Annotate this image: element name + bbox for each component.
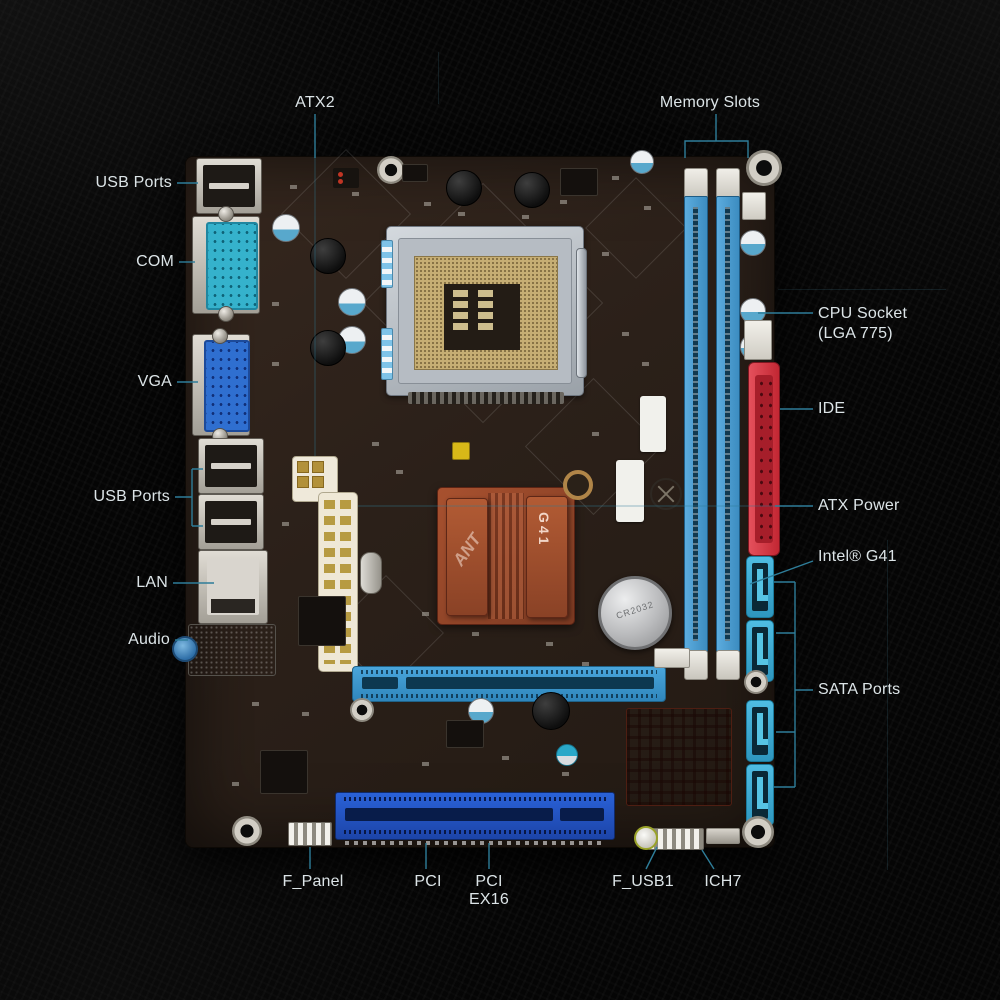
callout-text: F_Panel <box>283 873 344 890</box>
callout-text: Audio <box>128 631 170 648</box>
callout-lan: LAN <box>58 574 168 592</box>
capacitor-black <box>532 692 570 730</box>
io-controller-chip <box>260 750 308 794</box>
com-screw-post <box>218 206 234 222</box>
callout-atx2: ATX2 <box>265 94 365 112</box>
audio-codec-chip <box>298 596 346 646</box>
motherboard-diagram: G41 ANT CR2032 <box>0 0 1000 1000</box>
callout-text: COM <box>136 253 174 270</box>
cpu-socket-clip <box>381 240 393 288</box>
callout-text: PCI <box>414 873 441 890</box>
memory-slot-2-latch-bottom <box>716 650 740 680</box>
callout-f-panel: F_Panel <box>263 873 363 891</box>
callout-text: ATX2 <box>295 94 335 111</box>
cpu-socket-clip <box>381 328 393 380</box>
callout-memory-slots: Memory Slots <box>650 94 770 112</box>
lan-port <box>198 550 268 624</box>
mounting-hole <box>377 156 405 184</box>
callout-text-line2: (LGA 775) <box>818 324 978 344</box>
callout-intel-g41: Intel® G41 <box>818 548 958 566</box>
small-chip <box>560 168 598 196</box>
usb-tongue <box>209 183 249 189</box>
capacitor-black <box>310 330 346 366</box>
mounting-hole <box>350 698 374 722</box>
callout-text: F_USB1 <box>612 873 674 890</box>
usb-port-mid-2 <box>198 494 264 550</box>
callout-pci-ex16: PCI EX16 <box>457 873 521 909</box>
cpu-socket-lever <box>576 248 587 378</box>
cpu-fan-header <box>744 320 772 360</box>
bg-guide-line <box>778 289 946 290</box>
callout-text: Intel® G41 <box>818 548 897 565</box>
led-block <box>333 168 359 188</box>
pcie-groove-short <box>362 677 398 689</box>
callout-text: Memory Slots <box>660 94 760 111</box>
usb-port-mid-1 <box>198 438 264 494</box>
callout-usb-ports-mid: USB Ports <box>60 488 170 506</box>
piezo-buzzer <box>650 478 682 510</box>
bg-guide-line <box>887 540 888 870</box>
callout-f-usb1: F_USB1 <box>593 873 693 891</box>
cpu-pin-header-row <box>408 392 564 404</box>
capacitor-black <box>310 238 346 274</box>
bg-guide-line <box>438 52 439 104</box>
white-sticker <box>616 460 644 522</box>
battery-label: CR2032 <box>601 595 669 626</box>
white-connector <box>742 192 766 220</box>
metal-connector <box>706 828 740 844</box>
usb-tongue <box>211 519 251 525</box>
capacitor-black <box>514 172 550 208</box>
leader-f-usb1 <box>646 847 657 869</box>
sata-port-3 <box>746 700 774 762</box>
callout-text: IDE <box>818 400 845 417</box>
callout-text: VGA <box>138 373 172 390</box>
capacitor <box>338 288 366 316</box>
smd-components <box>0 0 7 4</box>
audio-jack <box>172 636 198 662</box>
crystal-oscillator <box>360 552 382 594</box>
cmos-battery: CR2032 <box>598 576 672 650</box>
pcie-retention-latch <box>654 648 690 668</box>
ich7-heatsink <box>626 708 732 806</box>
audio-block <box>188 624 276 676</box>
inductor-coil <box>563 470 593 500</box>
chipset-heatsink-label: G41 <box>536 512 552 547</box>
sata-port-1 <box>746 556 774 618</box>
leader-memory-slots <box>685 114 748 158</box>
callout-sata-ports: SATA Ports <box>818 681 958 699</box>
white-sticker <box>640 396 666 452</box>
mounting-hole <box>742 816 774 848</box>
ide-connector <box>748 362 780 556</box>
cpu-center-pads <box>444 284 520 350</box>
callout-text-line1: CPU Socket <box>818 304 978 324</box>
capacitor <box>740 230 766 256</box>
capacitor <box>272 214 300 242</box>
mounting-hole <box>746 150 782 186</box>
callout-text: USB Ports <box>94 488 171 505</box>
callout-text-line1: PCI <box>457 873 521 891</box>
f-panel-header <box>288 822 332 846</box>
com-screw-post <box>218 306 234 322</box>
mounting-hole <box>232 816 262 846</box>
heatsink-fins <box>488 493 524 619</box>
callout-text: SATA Ports <box>818 681 900 698</box>
memory-slot-2 <box>716 196 740 652</box>
capacitor-black <box>446 170 482 206</box>
small-chip <box>446 720 484 748</box>
pcie-groove-long <box>406 677 654 689</box>
callout-text: USB Ports <box>96 174 173 191</box>
callout-com: COM <box>64 253 174 271</box>
small-chip <box>402 164 428 182</box>
capacitor <box>630 150 654 174</box>
yellow-jumper <box>452 442 470 460</box>
mounting-hole <box>744 670 768 694</box>
memory-slot-1 <box>684 196 708 652</box>
leader-ich7 <box>702 850 714 869</box>
lan-opening <box>211 599 255 613</box>
com-port-face <box>206 222 258 310</box>
ide-pins <box>755 375 773 543</box>
callout-text: ICH7 <box>704 873 741 890</box>
callout-ich7: ICH7 <box>688 873 758 891</box>
callout-audio: Audio <box>60 631 170 649</box>
vga-screw-post <box>212 328 228 344</box>
callout-vga: VGA <box>62 373 172 391</box>
usb-tongue <box>211 463 251 469</box>
pci-groove-long <box>345 808 553 821</box>
callout-usb-ports-top: USB Ports <box>62 174 172 192</box>
memory-slot-groove <box>725 207 730 641</box>
solder-pads-row <box>345 841 605 845</box>
memory-slot-groove <box>693 207 698 641</box>
chipset-heatsink-g41: G41 ANT <box>437 487 575 625</box>
callout-cpu-socket: CPU Socket (LGA 775) <box>818 304 978 344</box>
callout-ide: IDE <box>818 400 938 418</box>
vga-port-face <box>204 340 250 432</box>
round-component <box>634 826 658 850</box>
callout-text: ATX Power <box>818 497 900 514</box>
pci-groove-short <box>560 808 604 821</box>
callout-atx-power: ATX Power <box>818 497 958 515</box>
capacitor-teal <box>556 744 578 766</box>
callout-pci: PCI <box>398 873 458 891</box>
callout-text-line2: EX16 <box>457 891 521 909</box>
leader-sata-ports <box>774 582 813 787</box>
callout-text: LAN <box>136 574 168 591</box>
